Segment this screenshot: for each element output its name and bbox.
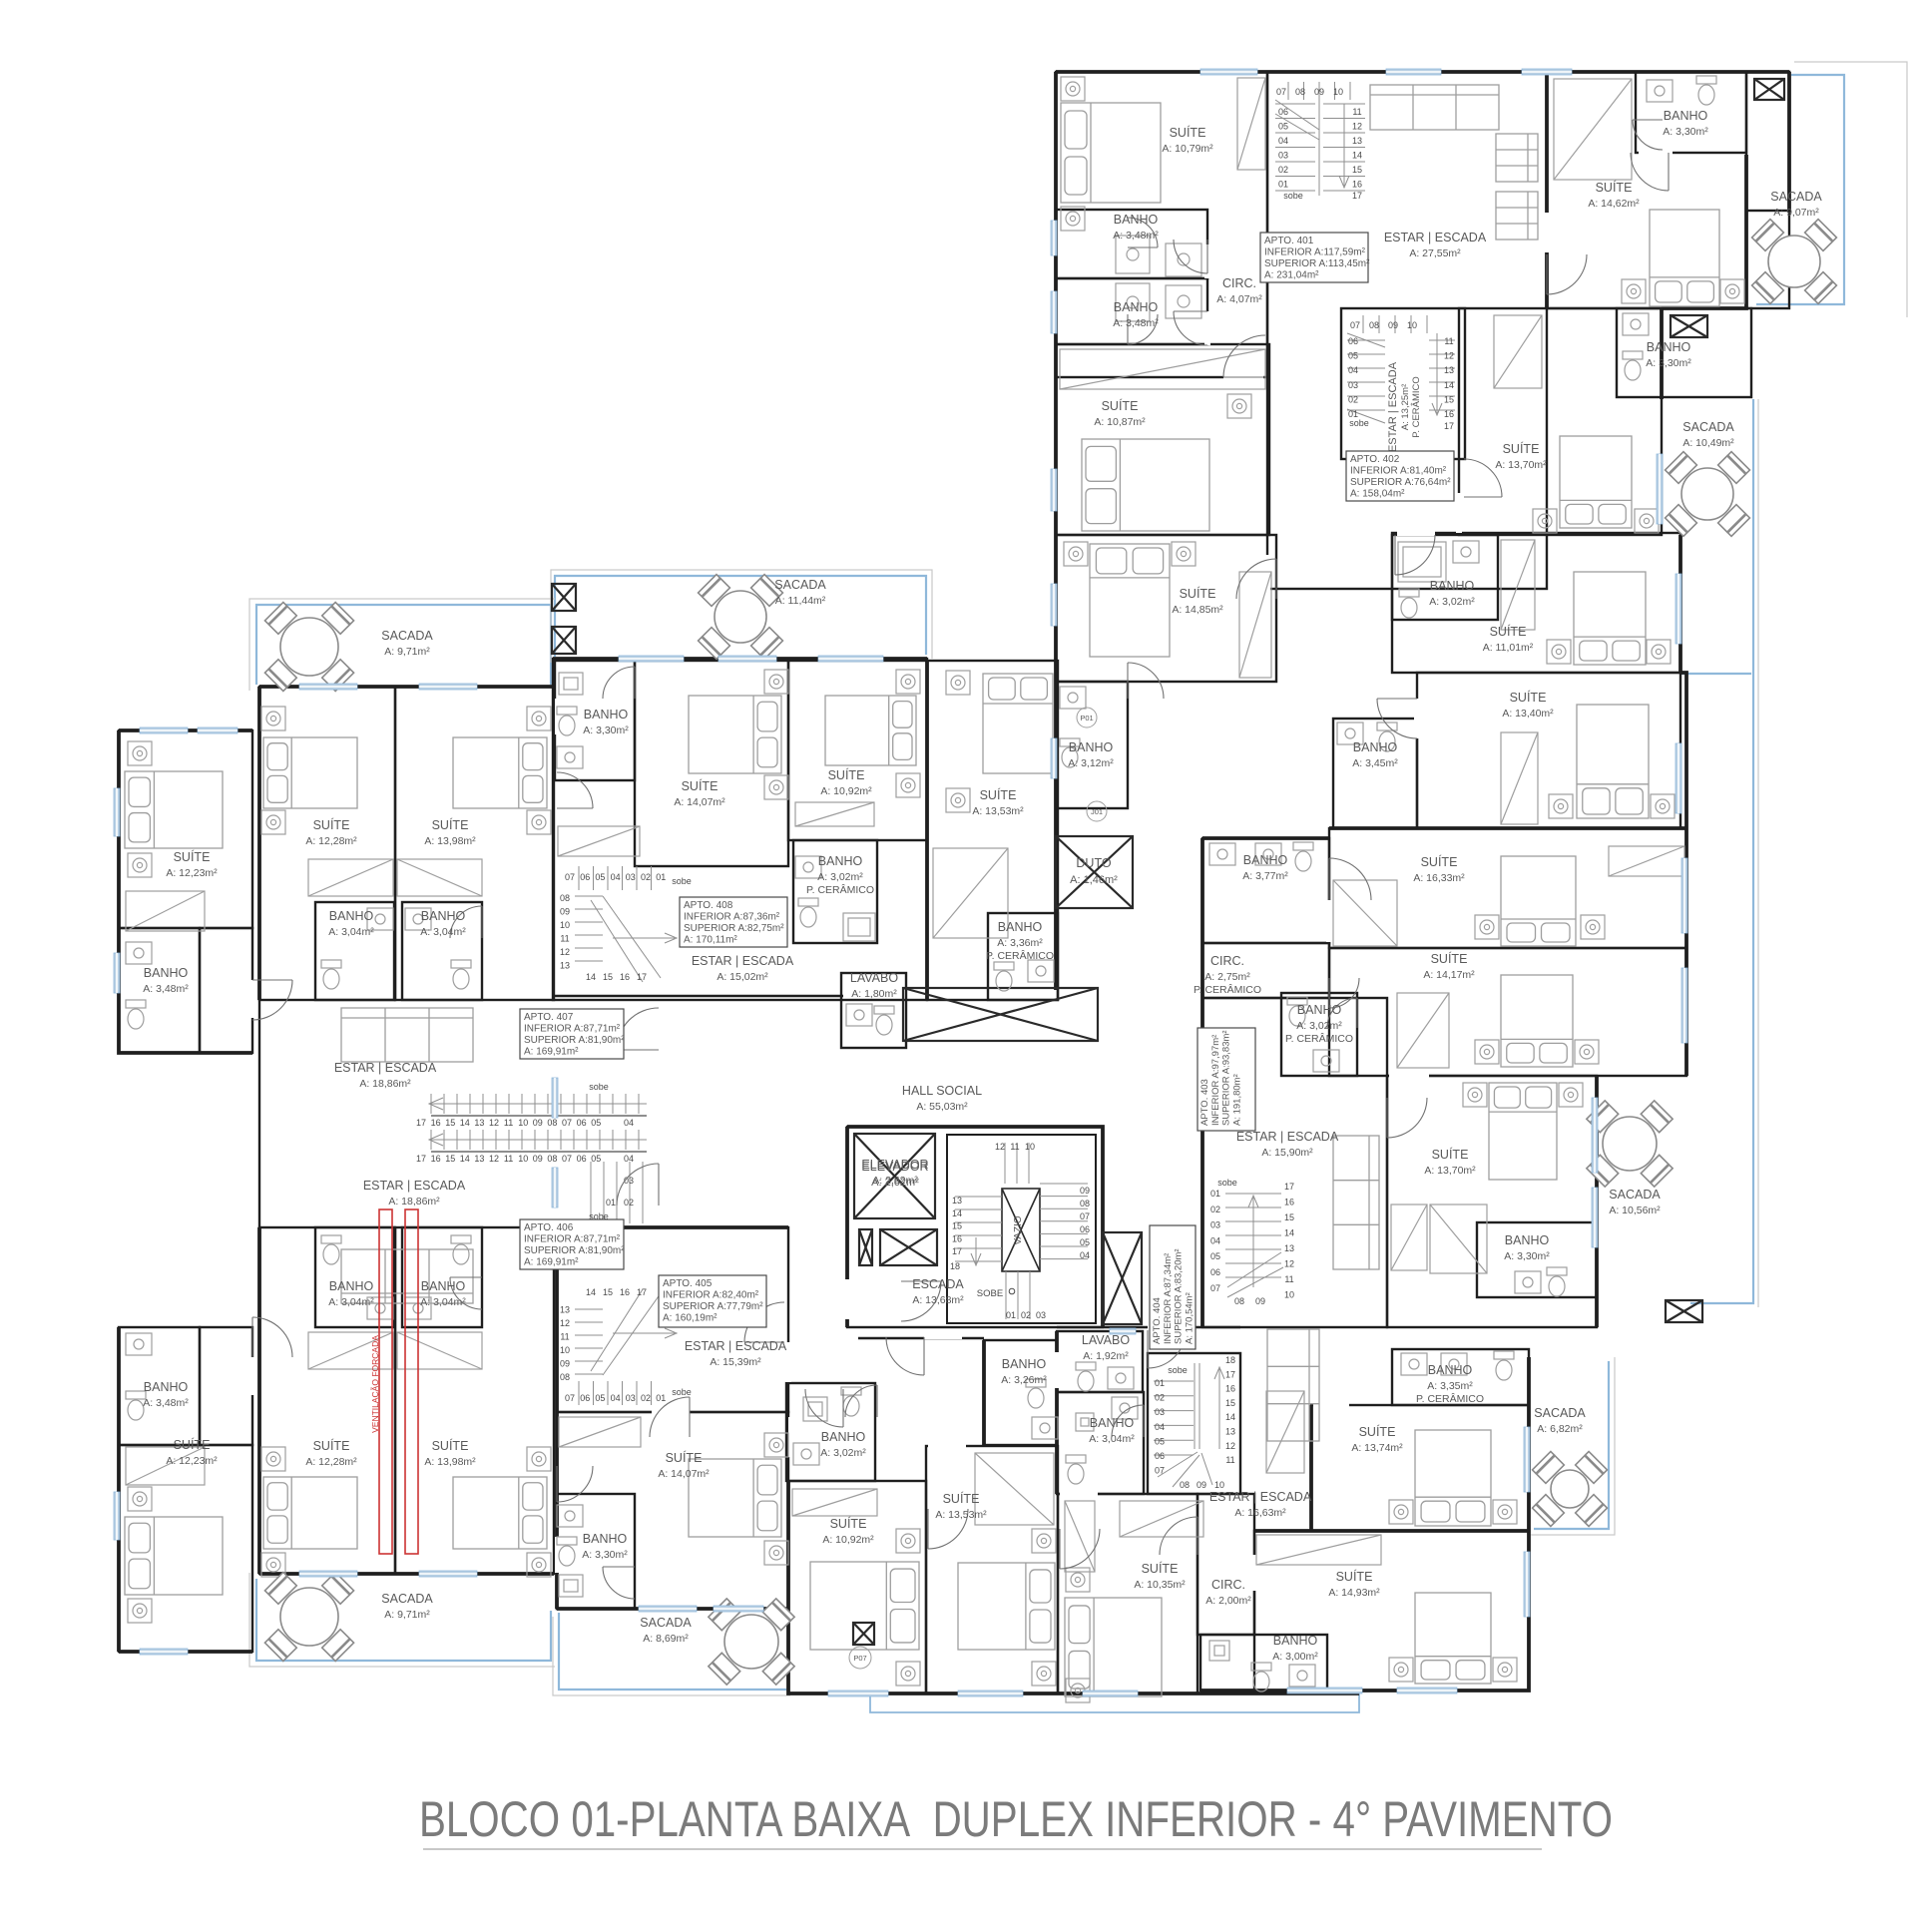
svg-text:08: 08 xyxy=(547,1118,557,1128)
svg-text:A: 13,98m²: A: 13,98m² xyxy=(424,1456,476,1468)
svg-text:BANHO: BANHO xyxy=(1114,300,1159,314)
svg-text:07: 07 xyxy=(1350,320,1360,330)
svg-text:11: 11 xyxy=(1010,1142,1019,1152)
svg-text:02: 02 xyxy=(1210,1205,1220,1214)
svg-text:BANHO: BANHO xyxy=(1114,213,1159,227)
svg-text:SUÍTE: SUÍTE xyxy=(1503,441,1540,456)
svg-text:sobe: sobe xyxy=(1349,418,1369,428)
svg-text:03: 03 xyxy=(626,1393,636,1403)
svg-text:07: 07 xyxy=(1080,1211,1090,1221)
svg-text:BANHO: BANHO xyxy=(1505,1233,1550,1247)
svg-text:BANHO: BANHO xyxy=(818,854,863,868)
svg-text:02: 02 xyxy=(1278,165,1288,175)
svg-text:BANHO: BANHO xyxy=(1647,340,1691,354)
svg-text:A: 3,30m²: A: 3,30m² xyxy=(582,1549,628,1561)
svg-text:01: 01 xyxy=(1278,180,1288,190)
svg-text:A: 3,48m²: A: 3,48m² xyxy=(143,1397,189,1409)
svg-text:INFERIOR A:87,71m²: INFERIOR A:87,71m² xyxy=(524,1234,621,1245)
svg-text:P. CERÂMICO: P. CERÂMICO xyxy=(1285,1032,1353,1045)
svg-text:SUÍTE: SUÍTE xyxy=(1432,1147,1469,1162)
svg-text:INFERIOR A:87,34m²: INFERIOR A:87,34m² xyxy=(1163,1253,1174,1344)
svg-text:SUÍTE: SUÍTE xyxy=(432,1438,469,1453)
svg-text:ELEVADOR: ELEVADOR xyxy=(861,1158,928,1172)
svg-text:04: 04 xyxy=(611,1393,621,1403)
svg-text:BANHO: BANHO xyxy=(329,909,374,923)
svg-text:A: 13,70m²: A: 13,70m² xyxy=(1424,1165,1476,1177)
svg-text:06: 06 xyxy=(1210,1267,1220,1277)
svg-text:07: 07 xyxy=(1155,1466,1165,1476)
svg-text:SUÍTE: SUÍTE xyxy=(313,817,350,832)
svg-text:07: 07 xyxy=(1210,1283,1220,1293)
svg-text:A: 3,04m²: A: 3,04m² xyxy=(1089,1433,1135,1445)
svg-text:APTO. 404: APTO. 404 xyxy=(1152,1297,1163,1344)
svg-text:INFERIOR A:81,40m²: INFERIOR A:81,40m² xyxy=(1350,466,1447,477)
svg-text:A: 170,54m²: A: 170,54m² xyxy=(1184,1292,1195,1344)
svg-text:sobe: sobe xyxy=(589,1082,609,1092)
svg-text:04: 04 xyxy=(1080,1250,1090,1260)
svg-text:ESTAR | ESCADA: ESTAR | ESCADA xyxy=(685,1339,787,1353)
svg-text:ESTAR | ESCADA: ESTAR | ESCADA xyxy=(334,1061,437,1075)
svg-text:14: 14 xyxy=(1444,380,1454,390)
svg-text:A: 13,68m²: A: 13,68m² xyxy=(912,1294,964,1306)
svg-text:sobe: sobe xyxy=(1217,1178,1237,1188)
svg-text:BANHO: BANHO xyxy=(998,920,1043,934)
svg-text:05: 05 xyxy=(595,872,605,882)
svg-text:SUÍTE: SUÍTE xyxy=(1336,1569,1373,1584)
svg-text:SUÍTE: SUÍTE xyxy=(666,1450,703,1465)
svg-text:16: 16 xyxy=(1225,1384,1235,1394)
svg-text:02: 02 xyxy=(1021,1310,1031,1320)
svg-text:A: 160,19m²: A: 160,19m² xyxy=(663,1313,718,1324)
svg-text:10: 10 xyxy=(1214,1480,1224,1490)
svg-text:BANHO: BANHO xyxy=(144,1380,189,1394)
svg-text:SUÍTE: SUÍTE xyxy=(1421,854,1458,869)
svg-text:APTO. 405: APTO. 405 xyxy=(663,1278,713,1289)
svg-text:SUÍTE: SUÍTE xyxy=(1359,1424,1396,1439)
svg-text:09: 09 xyxy=(1314,87,1324,97)
svg-text:APTO. 401: APTO. 401 xyxy=(1264,236,1314,246)
svg-text:07: 07 xyxy=(562,1118,572,1128)
svg-text:APTO. 407: APTO. 407 xyxy=(524,1012,574,1023)
svg-text:A: 3,12m²: A: 3,12m² xyxy=(1068,757,1114,769)
svg-text:A: 3,30m²: A: 3,30m² xyxy=(1504,1250,1550,1262)
svg-text:SACADA: SACADA xyxy=(1682,420,1734,434)
svg-text:12: 12 xyxy=(560,947,570,957)
svg-text:15: 15 xyxy=(1284,1212,1294,1222)
svg-text:A: 3,02m²: A: 3,02m² xyxy=(820,1447,866,1459)
svg-text:03: 03 xyxy=(1348,380,1358,390)
svg-text:16: 16 xyxy=(620,1287,630,1297)
svg-text:03: 03 xyxy=(1155,1407,1165,1417)
svg-text:SUÍTE: SUÍTE xyxy=(1510,690,1547,705)
svg-text:04: 04 xyxy=(1278,136,1288,146)
svg-text:11: 11 xyxy=(1444,336,1453,346)
svg-text:SUPERIOR A:82,75m²: SUPERIOR A:82,75m² xyxy=(684,923,784,934)
svg-text:A: 13,53m²: A: 13,53m² xyxy=(972,805,1024,817)
svg-text:01: 01 xyxy=(1210,1189,1220,1199)
svg-text:A: 3,02m²: A: 3,02m² xyxy=(1296,1020,1342,1032)
svg-text:SUPERIOR A:93,83m²: SUPERIOR A:93,83m² xyxy=(1221,1030,1232,1126)
svg-text:13: 13 xyxy=(1284,1243,1294,1253)
svg-text:A: 170,11m²: A: 170,11m² xyxy=(684,935,737,946)
svg-text:SUÍTE: SUÍTE xyxy=(1142,1561,1179,1576)
svg-text:10: 10 xyxy=(1284,1290,1294,1300)
svg-text:05: 05 xyxy=(591,1118,601,1128)
svg-text:A: 1,92m²: A: 1,92m² xyxy=(1083,1350,1129,1362)
svg-text:11: 11 xyxy=(1225,1455,1234,1465)
svg-text:11: 11 xyxy=(1352,107,1361,117)
svg-text:SUÍTE: SUÍTE xyxy=(174,849,211,864)
svg-text:A: 169,91m²: A: 169,91m² xyxy=(524,1047,579,1058)
svg-text:SUÍTE: SUÍTE xyxy=(943,1491,980,1506)
svg-text:BANHO: BANHO xyxy=(329,1279,374,1293)
svg-text:P. CERÂMICO: P. CERÂMICO xyxy=(1411,376,1422,438)
svg-text:A: 14,85m²: A: 14,85m² xyxy=(1172,604,1223,616)
svg-text:SUÍTE: SUÍTE xyxy=(174,1437,211,1452)
svg-text:ESTAR | ESCADA: ESTAR | ESCADA xyxy=(1387,361,1399,452)
svg-text:12: 12 xyxy=(489,1118,499,1128)
svg-text:A: 2,00m²: A: 2,00m² xyxy=(1205,1595,1251,1607)
svg-text:05: 05 xyxy=(1080,1237,1090,1247)
svg-text:16: 16 xyxy=(952,1233,962,1243)
svg-text:12: 12 xyxy=(1352,122,1362,132)
svg-text:14: 14 xyxy=(586,1287,596,1297)
svg-text:A: 16,63m²: A: 16,63m² xyxy=(1234,1507,1286,1519)
svg-text:A: 3,04m²: A: 3,04m² xyxy=(420,926,466,938)
svg-text:A: 13,98m²: A: 13,98m² xyxy=(424,835,476,847)
svg-text:A: 9,71m²: A: 9,71m² xyxy=(384,646,430,658)
svg-text:A: 231,04m²: A: 231,04m² xyxy=(1264,270,1319,281)
svg-text:A: 2,62m²: A: 2,62m² xyxy=(872,1175,918,1187)
svg-text:17: 17 xyxy=(416,1154,426,1164)
svg-text:12: 12 xyxy=(995,1142,1005,1152)
svg-text:BANHO: BANHO xyxy=(1428,1363,1473,1377)
svg-text:A: 11,01m²: A: 11,01m² xyxy=(1483,642,1534,654)
svg-text:sobe: sobe xyxy=(672,1387,692,1397)
svg-text:17: 17 xyxy=(1352,191,1362,201)
svg-text:12: 12 xyxy=(1444,351,1454,361)
svg-text:12: 12 xyxy=(1225,1441,1235,1451)
svg-text:03: 03 xyxy=(1036,1310,1046,1320)
svg-text:VAZIO: VAZIO xyxy=(1013,1215,1024,1244)
svg-text:14: 14 xyxy=(1284,1228,1294,1238)
svg-text:A: 10,92m²: A: 10,92m² xyxy=(820,785,872,797)
svg-text:12: 12 xyxy=(560,1318,570,1328)
svg-text:SUÍTE: SUÍTE xyxy=(980,787,1017,802)
svg-text:CIRC.: CIRC. xyxy=(1222,276,1256,290)
svg-text:SACADA: SACADA xyxy=(381,629,433,643)
svg-text:A: 1,80m²: A: 1,80m² xyxy=(851,988,897,1000)
svg-text:13: 13 xyxy=(952,1196,962,1206)
svg-text:A: 3,48m²: A: 3,48m² xyxy=(143,983,189,995)
svg-text:A: 3,48m²: A: 3,48m² xyxy=(1113,230,1159,241)
svg-text:02: 02 xyxy=(641,1393,651,1403)
svg-text:06: 06 xyxy=(1155,1451,1165,1461)
svg-text:08: 08 xyxy=(560,893,570,903)
svg-text:02: 02 xyxy=(1155,1393,1165,1403)
svg-text:SUÍTE: SUÍTE xyxy=(313,1438,350,1453)
svg-text:04: 04 xyxy=(1155,1422,1165,1432)
svg-text:15: 15 xyxy=(1352,165,1362,175)
svg-text:09: 09 xyxy=(533,1118,543,1128)
svg-text:17: 17 xyxy=(952,1246,962,1256)
svg-text:09: 09 xyxy=(1255,1296,1265,1306)
svg-text:03: 03 xyxy=(1278,151,1288,161)
svg-text:J01: J01 xyxy=(1091,807,1103,816)
svg-text:15: 15 xyxy=(445,1154,455,1164)
svg-text:BANHO: BANHO xyxy=(821,1430,866,1444)
svg-text:05: 05 xyxy=(1155,1436,1165,1446)
svg-text:BANHO: BANHO xyxy=(1090,1416,1135,1430)
svg-text:08: 08 xyxy=(1180,1480,1190,1490)
svg-text:A: 10,79m²: A: 10,79m² xyxy=(1162,143,1213,155)
svg-text:03: 03 xyxy=(626,872,636,882)
svg-text:06: 06 xyxy=(1080,1224,1090,1234)
svg-text:BANHO: BANHO xyxy=(421,1279,466,1293)
svg-text:A: 191,80m²: A: 191,80m² xyxy=(1231,1074,1242,1126)
svg-text:05: 05 xyxy=(1210,1251,1220,1261)
svg-text:03: 03 xyxy=(1210,1220,1220,1230)
svg-text:A: 13,25m²: A: 13,25m² xyxy=(1400,384,1411,430)
svg-text:02: 02 xyxy=(624,1198,634,1207)
svg-text:09: 09 xyxy=(560,1359,570,1369)
svg-text:ESTAR | ESCADA: ESTAR | ESCADA xyxy=(1209,1490,1312,1504)
svg-text:11: 11 xyxy=(560,934,569,944)
svg-text:A: 27,55m²: A: 27,55m² xyxy=(1409,247,1461,259)
svg-text:INFERIOR A:87,36m²: INFERIOR A:87,36m² xyxy=(684,912,780,923)
svg-text:A: 14,07m²: A: 14,07m² xyxy=(674,796,725,808)
svg-text:A: 13,53m²: A: 13,53m² xyxy=(935,1509,987,1521)
svg-text:A: 10,35m²: A: 10,35m² xyxy=(1134,1579,1186,1591)
svg-text:P. CERÂMICO: P. CERÂMICO xyxy=(806,883,874,896)
svg-text:BANHO: BANHO xyxy=(1297,1003,1342,1017)
svg-text:A: 10,87m²: A: 10,87m² xyxy=(1094,416,1146,428)
svg-text:A: 169,91m²: A: 169,91m² xyxy=(524,1257,579,1268)
svg-text:A: 1,46m²: A: 1,46m² xyxy=(1070,874,1118,886)
svg-text:15: 15 xyxy=(445,1118,455,1128)
svg-text:06: 06 xyxy=(577,1118,587,1128)
svg-text:BANHO: BANHO xyxy=(584,708,629,722)
svg-text:BANHO: BANHO xyxy=(1430,579,1475,593)
svg-text:18: 18 xyxy=(1225,1355,1235,1365)
svg-text:04: 04 xyxy=(624,1118,634,1128)
svg-text:BANHO: BANHO xyxy=(583,1532,628,1546)
svg-text:01: 01 xyxy=(1155,1378,1165,1388)
svg-text:SUÍTE: SUÍTE xyxy=(828,767,865,782)
svg-text:04: 04 xyxy=(1210,1235,1220,1245)
svg-text:13: 13 xyxy=(560,961,570,971)
svg-text:SUPERIOR A:83,20m²: SUPERIOR A:83,20m² xyxy=(1174,1248,1185,1344)
svg-text:A: 14,17m²: A: 14,17m² xyxy=(1423,969,1475,981)
svg-text:A: 11,44m²: A: 11,44m² xyxy=(775,595,826,607)
svg-text:02: 02 xyxy=(1348,394,1358,404)
svg-text:INFERIOR A:117,59m²: INFERIOR A:117,59m² xyxy=(1264,247,1366,258)
svg-text:A: 16,33m²: A: 16,33m² xyxy=(1413,872,1465,884)
svg-text:SACADA: SACADA xyxy=(1609,1188,1661,1202)
svg-text:sobe: sobe xyxy=(1168,1365,1188,1375)
svg-text:05: 05 xyxy=(591,1154,601,1164)
svg-text:SACADA: SACADA xyxy=(640,1616,692,1630)
svg-text:A: 6,82m²: A: 6,82m² xyxy=(1537,1423,1583,1435)
svg-text:07: 07 xyxy=(565,872,575,882)
svg-text:LAVABO: LAVABO xyxy=(850,971,898,985)
svg-text:07: 07 xyxy=(1276,87,1286,97)
svg-text:A: 3,02m²: A: 3,02m² xyxy=(1429,596,1475,608)
svg-text:09: 09 xyxy=(560,907,570,917)
svg-text:13: 13 xyxy=(1444,365,1454,375)
svg-text:A: 18,86m²: A: 18,86m² xyxy=(388,1196,440,1207)
svg-text:A: 13,74m²: A: 13,74m² xyxy=(1351,1442,1403,1454)
svg-text:15: 15 xyxy=(952,1221,962,1231)
svg-text:04: 04 xyxy=(1348,365,1358,375)
svg-text:A: 158,04m²: A: 158,04m² xyxy=(1350,489,1405,500)
svg-text:15: 15 xyxy=(603,1287,613,1297)
svg-text:SUPERIOR A:113,45m²: SUPERIOR A:113,45m² xyxy=(1264,258,1370,269)
svg-text:16: 16 xyxy=(1444,409,1454,419)
svg-text:13: 13 xyxy=(1225,1427,1235,1437)
svg-text:14: 14 xyxy=(460,1154,470,1164)
svg-text:14: 14 xyxy=(1225,1412,1235,1422)
svg-text:P07: P07 xyxy=(853,1654,866,1663)
svg-text:BANHO: BANHO xyxy=(1002,1357,1047,1371)
svg-text:05: 05 xyxy=(1278,122,1288,132)
svg-text:01: 01 xyxy=(656,1393,666,1403)
svg-text:14: 14 xyxy=(1352,151,1362,161)
svg-text:01: 01 xyxy=(606,1198,616,1207)
svg-text:A: 3,26m²: A: 3,26m² xyxy=(1001,1374,1047,1386)
svg-text:SUÍTE: SUÍTE xyxy=(830,1516,867,1531)
svg-text:A: 55,03m²: A: 55,03m² xyxy=(916,1101,968,1113)
svg-text:INFERIOR A:87,71m²: INFERIOR A:87,71m² xyxy=(524,1024,621,1035)
svg-text:SUÍTE: SUÍTE xyxy=(432,817,469,832)
svg-text:P. CERÂMICO: P. CERÂMICO xyxy=(1416,1392,1484,1405)
svg-text:01: 01 xyxy=(1006,1310,1016,1320)
svg-text:A: 10,49m²: A: 10,49m² xyxy=(1682,437,1734,449)
svg-text:A: 12,23m²: A: 12,23m² xyxy=(166,867,218,879)
svg-text:16: 16 xyxy=(1284,1198,1294,1207)
svg-text:09: 09 xyxy=(1388,320,1398,330)
svg-text:10: 10 xyxy=(1407,320,1417,330)
svg-text:A: 3,35m²: A: 3,35m² xyxy=(1427,1380,1473,1392)
svg-text:P. CERÂMICO: P. CERÂMICO xyxy=(986,949,1054,962)
svg-text:ESTAR | ESCADA: ESTAR | ESCADA xyxy=(1236,1130,1339,1144)
svg-text:16: 16 xyxy=(431,1118,441,1128)
svg-text:A: 10,56m²: A: 10,56m² xyxy=(1609,1205,1661,1216)
svg-text:LAVABO: LAVABO xyxy=(1082,1333,1130,1347)
svg-text:SUÍTE: SUÍTE xyxy=(1490,624,1527,639)
svg-text:SUÍTE: SUÍTE xyxy=(1180,586,1216,601)
svg-text:APTO. 408: APTO. 408 xyxy=(684,900,733,911)
svg-text:DUTO: DUTO xyxy=(1076,856,1111,870)
svg-text:SACADA: SACADA xyxy=(1770,190,1822,204)
svg-text:BANHO: BANHO xyxy=(421,909,466,923)
svg-text:SUPERIOR A:81,90m²: SUPERIOR A:81,90m² xyxy=(524,1035,625,1046)
svg-text:SUÍTE: SUÍTE xyxy=(1170,125,1206,140)
svg-text:CIRC.: CIRC. xyxy=(1211,1578,1245,1592)
svg-text:09: 09 xyxy=(1080,1186,1090,1196)
svg-text:A: 12,28m²: A: 12,28m² xyxy=(305,1456,357,1468)
svg-text:A: 15,39m²: A: 15,39m² xyxy=(710,1356,761,1368)
svg-text:A: 12,28m²: A: 12,28m² xyxy=(305,835,357,847)
svg-text:12: 12 xyxy=(489,1154,499,1164)
svg-text:12: 12 xyxy=(1284,1259,1294,1269)
svg-text:SUÍTE: SUÍTE xyxy=(682,778,718,793)
svg-text:06: 06 xyxy=(580,1393,590,1403)
svg-text:ESTAR | ESCADA: ESTAR | ESCADA xyxy=(1384,231,1487,244)
svg-text:HALL SOCIAL: HALL SOCIAL xyxy=(902,1084,982,1098)
svg-text:CIRC.: CIRC. xyxy=(1210,954,1244,968)
svg-text:A: 9,07m²: A: 9,07m² xyxy=(1773,207,1819,219)
svg-text:10: 10 xyxy=(518,1118,528,1128)
svg-text:11: 11 xyxy=(1284,1274,1293,1284)
svg-text:11: 11 xyxy=(504,1154,513,1164)
svg-text:10: 10 xyxy=(518,1154,528,1164)
svg-text:10: 10 xyxy=(1025,1142,1035,1152)
svg-text:BANHO: BANHO xyxy=(1664,109,1708,123)
svg-text:08: 08 xyxy=(1234,1296,1244,1306)
svg-text:BLOCO 01-PLANTA BAIXA DUPLEX: BLOCO 01-PLANTA BAIXA DUPLEX INFERIOR - … xyxy=(419,1791,1613,1847)
svg-text:SUÍTE: SUÍTE xyxy=(1431,951,1468,966)
svg-text:A: 3,48m²: A: 3,48m² xyxy=(1113,317,1159,329)
svg-text:13: 13 xyxy=(474,1118,484,1128)
svg-text:VENTILAÇÃO FORÇADA: VENTILAÇÃO FORÇADA xyxy=(370,1335,380,1433)
svg-text:17: 17 xyxy=(416,1118,426,1128)
svg-text:15: 15 xyxy=(1444,394,1454,404)
svg-text:SUPERIOR A:76,64m²: SUPERIOR A:76,64m² xyxy=(1350,477,1451,488)
svg-text:13: 13 xyxy=(560,1305,570,1315)
svg-text:ESTAR | ESCADA: ESTAR | ESCADA xyxy=(363,1179,466,1193)
svg-text:SACADA: SACADA xyxy=(1534,1406,1586,1420)
svg-text:14: 14 xyxy=(586,972,596,982)
svg-text:APTO. 406: APTO. 406 xyxy=(524,1222,574,1233)
svg-text:08: 08 xyxy=(560,1372,570,1382)
svg-text:16: 16 xyxy=(431,1154,441,1164)
svg-text:SACADA: SACADA xyxy=(381,1592,433,1606)
svg-text:08: 08 xyxy=(1295,87,1305,97)
svg-text:A: 8,69m²: A: 8,69m² xyxy=(643,1633,689,1645)
svg-text:17: 17 xyxy=(637,1287,647,1297)
svg-text:06: 06 xyxy=(1348,336,1358,346)
svg-text:A: 12,23m²: A: 12,23m² xyxy=(166,1455,218,1467)
svg-text:A: 3,30m²: A: 3,30m² xyxy=(1663,126,1708,138)
svg-text:01: 01 xyxy=(656,872,666,882)
svg-text:A: 10,92m²: A: 10,92m² xyxy=(822,1534,874,1546)
svg-text:A: 13,40m²: A: 13,40m² xyxy=(1502,708,1554,720)
svg-text:04: 04 xyxy=(624,1154,634,1164)
svg-text:SUÍTE: SUÍTE xyxy=(1102,398,1139,413)
svg-text:SUPERIOR A:81,90m²: SUPERIOR A:81,90m² xyxy=(524,1245,625,1256)
svg-text:INFERIOR A:82,40m²: INFERIOR A:82,40m² xyxy=(663,1290,759,1301)
svg-text:17: 17 xyxy=(1284,1182,1294,1192)
svg-text:sobe: sobe xyxy=(1283,191,1303,201)
svg-text:10: 10 xyxy=(560,1345,570,1355)
svg-text:16: 16 xyxy=(620,972,630,982)
svg-text:18: 18 xyxy=(950,1261,960,1271)
svg-text:A: 3,36m²: A: 3,36m² xyxy=(997,937,1043,949)
svg-text:11: 11 xyxy=(560,1332,569,1342)
svg-text:BANHO: BANHO xyxy=(144,966,189,980)
svg-text:08: 08 xyxy=(1369,320,1379,330)
svg-text:BANHO: BANHO xyxy=(1353,740,1398,754)
svg-text:A: 4,07m²: A: 4,07m² xyxy=(1216,293,1262,305)
svg-text:A: 2,75m²: A: 2,75m² xyxy=(1204,971,1250,983)
svg-text:A: 3,04m²: A: 3,04m² xyxy=(420,1296,466,1308)
svg-text:17: 17 xyxy=(637,972,647,982)
svg-text:04: 04 xyxy=(611,872,621,882)
svg-text:13: 13 xyxy=(1352,136,1362,146)
svg-text:08: 08 xyxy=(547,1154,557,1164)
svg-text:15: 15 xyxy=(1225,1398,1235,1408)
